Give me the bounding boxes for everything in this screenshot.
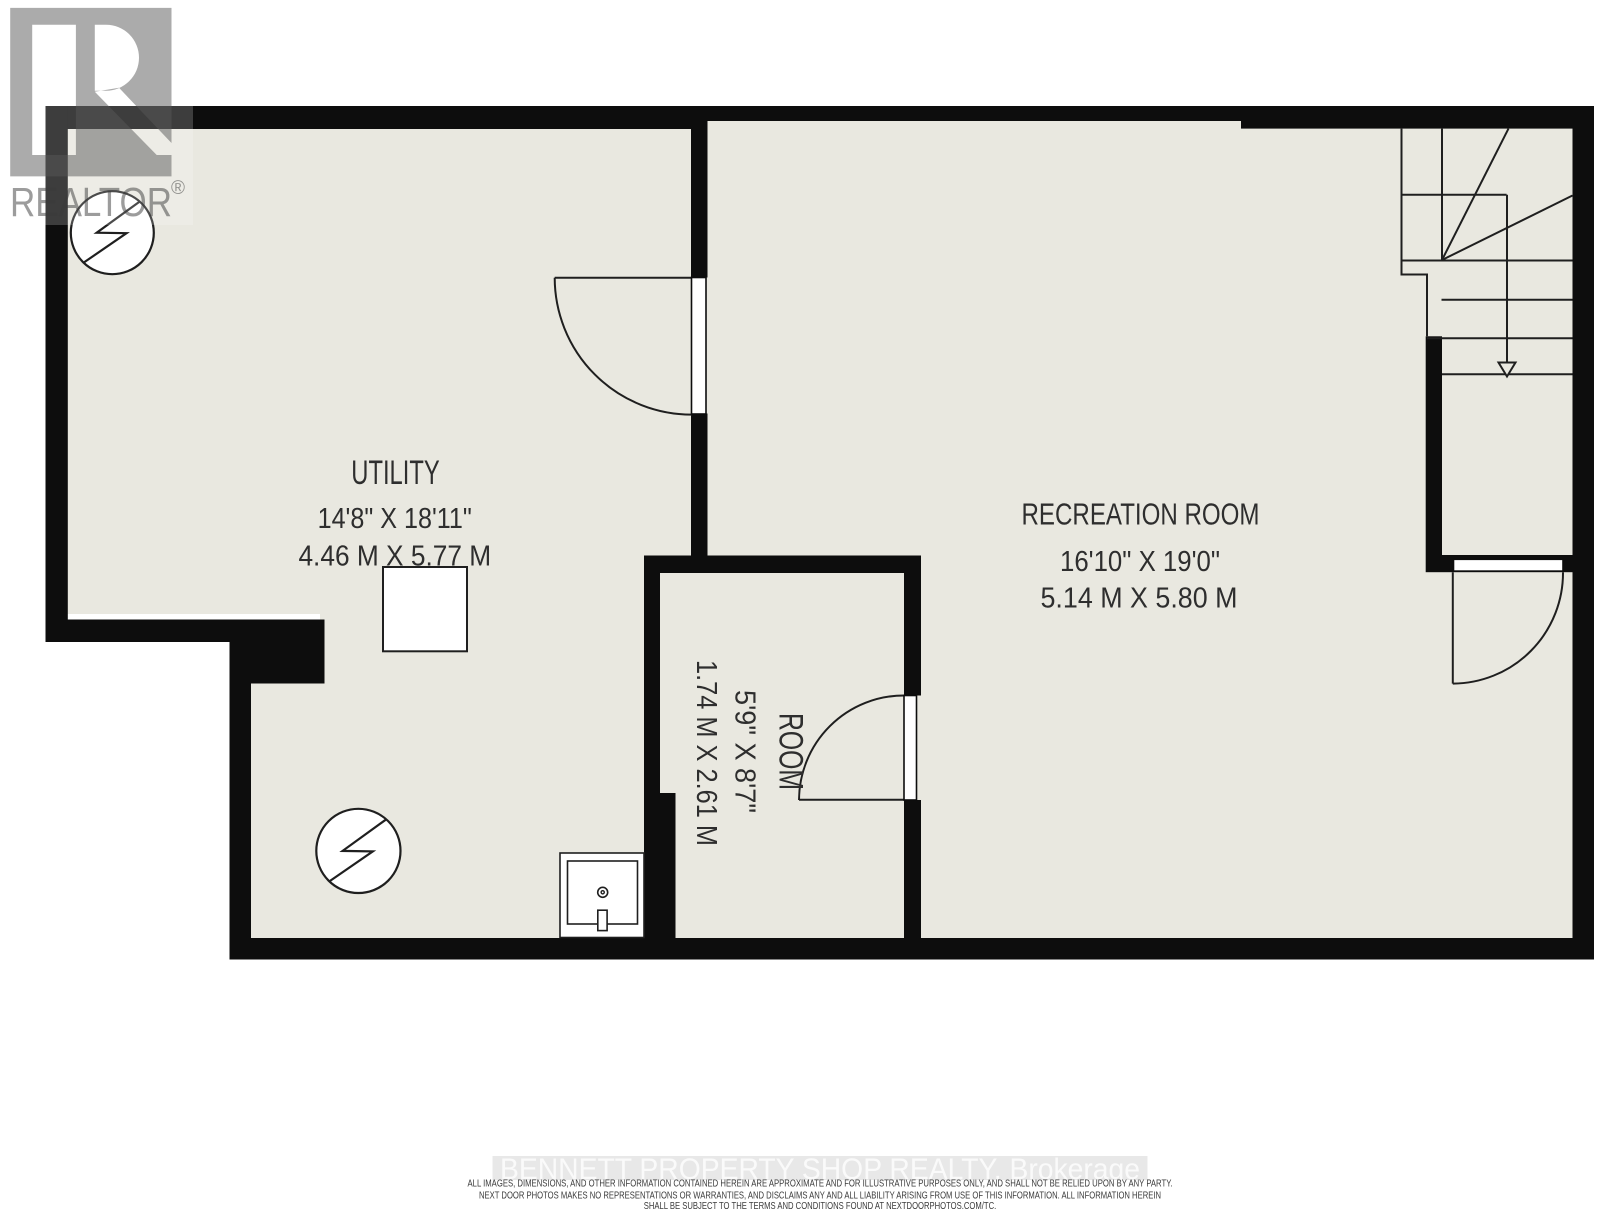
svg-text:5.14 M X 5.80 M: 5.14 M X 5.80 M: [1041, 583, 1238, 615]
svg-text:UTILITY: UTILITY: [351, 454, 439, 492]
svg-text:REALTOR: REALTOR: [10, 179, 172, 225]
svg-text:4.46 M X 5.77 M: 4.46 M X 5.77 M: [298, 541, 491, 573]
svg-text:1.74 M X 2.61 M: 1.74 M X 2.61 M: [690, 660, 722, 846]
svg-text:®: ®: [171, 178, 185, 199]
svg-text:ROOM: ROOM: [772, 713, 810, 790]
svg-text:16'10" X 19'0": 16'10" X 19'0": [1060, 546, 1220, 578]
svg-text:RECREATION ROOM: RECREATION ROOM: [1022, 496, 1260, 531]
svg-text:14'8" X 18'11": 14'8" X 18'11": [318, 503, 472, 535]
svg-text:ALL IMAGES, DIMENSIONS, AND OT: ALL IMAGES, DIMENSIONS, AND OTHER INFORM…: [468, 1178, 1173, 1190]
svg-text:5'9" X 8'7": 5'9" X 8'7": [729, 690, 761, 813]
svg-text:SHALL BE SUBJECT TO THE TERMS: SHALL BE SUBJECT TO THE TERMS AND CONDIT…: [644, 1200, 997, 1212]
